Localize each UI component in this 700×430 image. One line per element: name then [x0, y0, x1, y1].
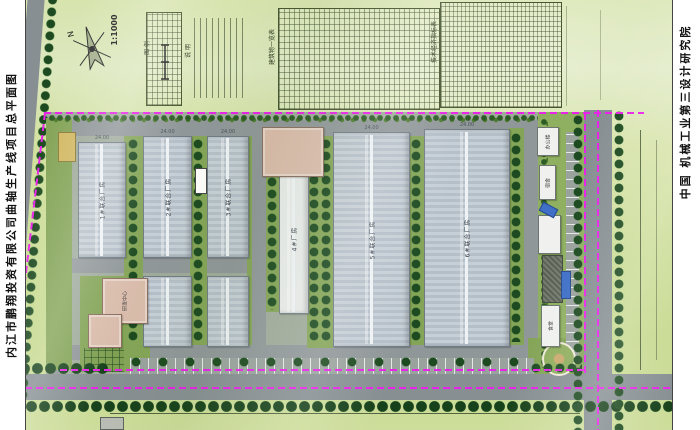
scale-bar: [160, 44, 170, 80]
hall-1-label: 1#联合厂房: [98, 181, 107, 220]
dimension-line-east-2: [656, 140, 657, 360]
north-letter: N: [66, 30, 76, 38]
rnd-building-b: [88, 314, 122, 348]
indicators-title: 技术经济指标表: [429, 35, 439, 63]
scale-text: 1:1000: [110, 2, 122, 58]
hall-5-label: 5#联合厂房: [367, 220, 376, 259]
north-boundary-hedge: [48, 114, 584, 123]
dimension-line-south: [110, 413, 580, 414]
hall-3: 24.00 3#联合厂房: [207, 136, 249, 258]
south-gatehouse: [100, 417, 124, 430]
hall-4-label: 4#厂房: [290, 227, 299, 252]
hall-2-label: 2#联合厂房: [163, 178, 172, 217]
hall-6-label: 6#联合厂房: [463, 219, 472, 258]
hall-2-south-wing: [143, 276, 192, 347]
bicycle-shed: [561, 271, 571, 299]
inner-middle-road: [52, 258, 272, 273]
boundary-east: [584, 113, 586, 373]
canteen-building: 食堂: [541, 305, 560, 347]
canteen-label: 食堂: [547, 321, 554, 331]
east-road-tree-row-west: [572, 114, 584, 430]
dark-roof-building: [542, 255, 563, 303]
legend-title: 图 例: [142, 34, 152, 62]
dimension-line-topband-1: [566, 6, 567, 106]
hall-3-label: 3#联合厂房: [224, 178, 233, 217]
hall-4: 4#厂房: [279, 164, 309, 314]
tree-row-strip-6: [410, 138, 422, 343]
dormitory-label: 宿舍: [544, 177, 551, 187]
indicators-table: [440, 2, 562, 108]
tree-row-strip-7: [510, 132, 522, 342]
rnd-label: 研发中心: [122, 291, 129, 311]
gate-feature: [58, 132, 76, 162]
dimension-line-topband-2: [600, 10, 601, 100]
building-list-table: [278, 8, 440, 110]
east-road-tree-row-east: [613, 110, 625, 430]
office-building: 办公楼: [537, 127, 559, 156]
hall-5: 24.00 5#联合厂房: [333, 132, 410, 347]
south-road-centerline: [25, 387, 673, 389]
office-label: 办公楼: [545, 134, 552, 149]
north-pink-building: [262, 127, 324, 177]
site-plan-drawing: 24.00 1#联合厂房 24.00 2#联合厂房 24.00 3#联合厂房 4…: [0, 0, 700, 430]
building-list-title: 建筑物一览表: [267, 37, 277, 65]
hall-2-width-dim: 24.00: [160, 129, 174, 135]
hall-1: 24.00 1#联合厂房: [78, 142, 126, 258]
hall-2: 24.00 2#联合厂房: [143, 136, 192, 258]
boundary-south: [60, 369, 588, 371]
dormitory-building: 宿舍: [539, 165, 556, 200]
notes-title: 说 明: [183, 39, 193, 63]
east-road-centerline: [597, 110, 599, 430]
hall-3-south-wing: [207, 276, 249, 347]
hall-5-width-dim: 24.00: [364, 125, 378, 131]
boundary-north: [44, 112, 644, 114]
hall-6: 24.00 6#联合厂房: [424, 129, 510, 347]
hall-3-width-dim: 24.00: [221, 129, 235, 135]
south-parking-trees: [130, 356, 534, 370]
notes-block: [194, 18, 248, 98]
hall-1-width-dim: 24.00: [95, 135, 109, 141]
amenity-building: [538, 215, 561, 254]
left-title-text: 内江市鹏翔投资有限公司曲轴生产线项目总平面图: [0, 0, 24, 430]
bus-shelter: [195, 168, 207, 194]
hall-6-width-dim: 24.00: [460, 122, 474, 128]
right-title-text: 中国 机械工业第三设计研究院: [674, 7, 698, 217]
dimension-line-east-1: [640, 130, 641, 370]
